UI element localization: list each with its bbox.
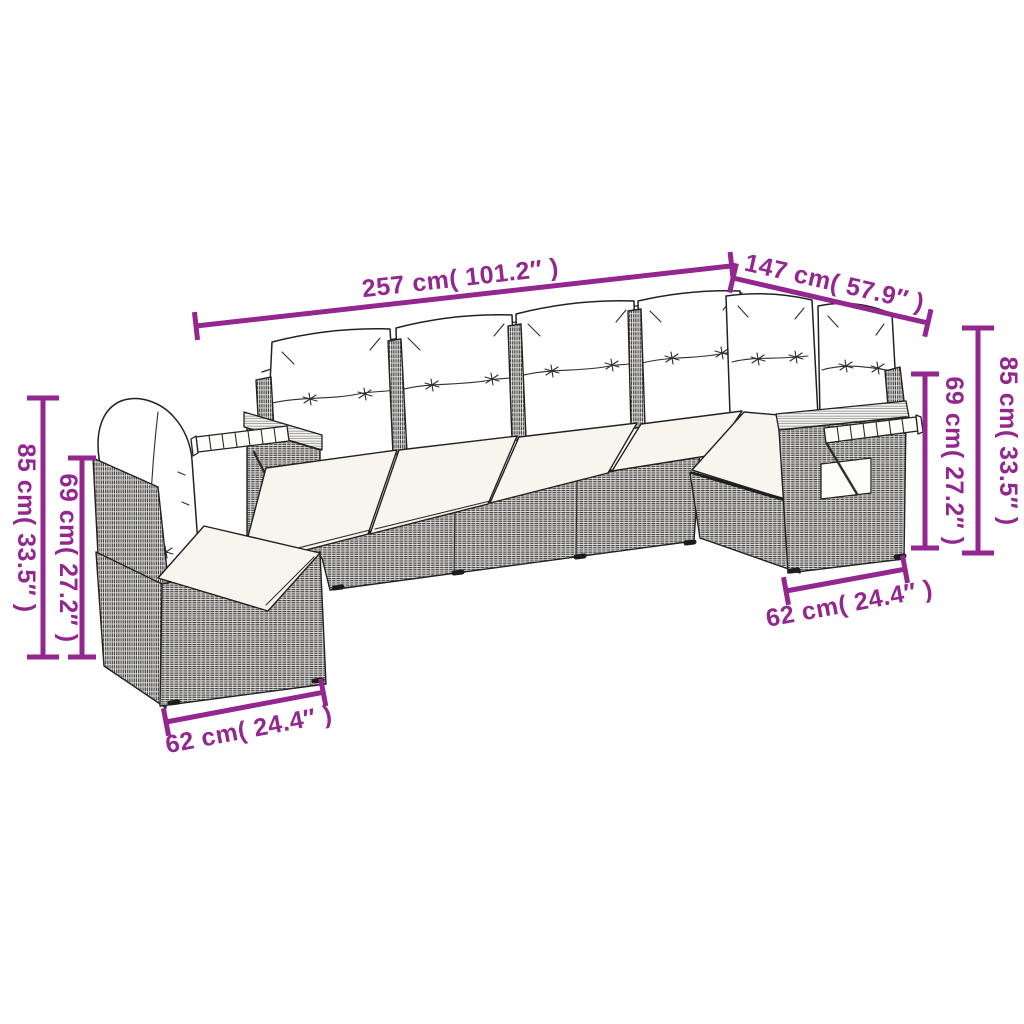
dim-left-frame-height: 69 cm( 27.2″ ) [54, 458, 96, 657]
right-armrest-cutout [821, 458, 871, 499]
back-cushion-3 [516, 301, 637, 439]
dim-right-total-height: 85 cm( 33.5″ ) [962, 328, 1022, 553]
dim-left-frame-height-label: 69 cm( 27.2″ ) [54, 473, 82, 642]
dim-left-module-width-label: 62 cm( 24.4″ ) [163, 700, 334, 759]
dim-left-total-height: 85 cm( 33.5″ ) [12, 398, 59, 657]
product-dimension-diagram: 257 cm( 101.2″ ) 147 cm( 57.9″ ) 85 cm( … [0, 0, 1024, 1024]
dim-right-module-width-label: 62 cm( 24.4″ ) [764, 575, 935, 633]
sofa-illustration [93, 291, 923, 708]
dim-right-frame-height-label: 69 cm( 27.2″ ) [940, 376, 968, 545]
dim-line [911, 374, 939, 548]
back-cushion-corner [726, 294, 818, 418]
dim-right-total-height-label: 85 cm( 33.5″ ) [994, 356, 1022, 525]
dim-right-frame-height: 69 cm( 27.2″ ) [911, 374, 968, 548]
dim-left-total-height-label: 85 cm( 33.5″ ) [12, 443, 40, 612]
main-sofa [191, 291, 923, 590]
back-cushion-2 [396, 315, 517, 452]
